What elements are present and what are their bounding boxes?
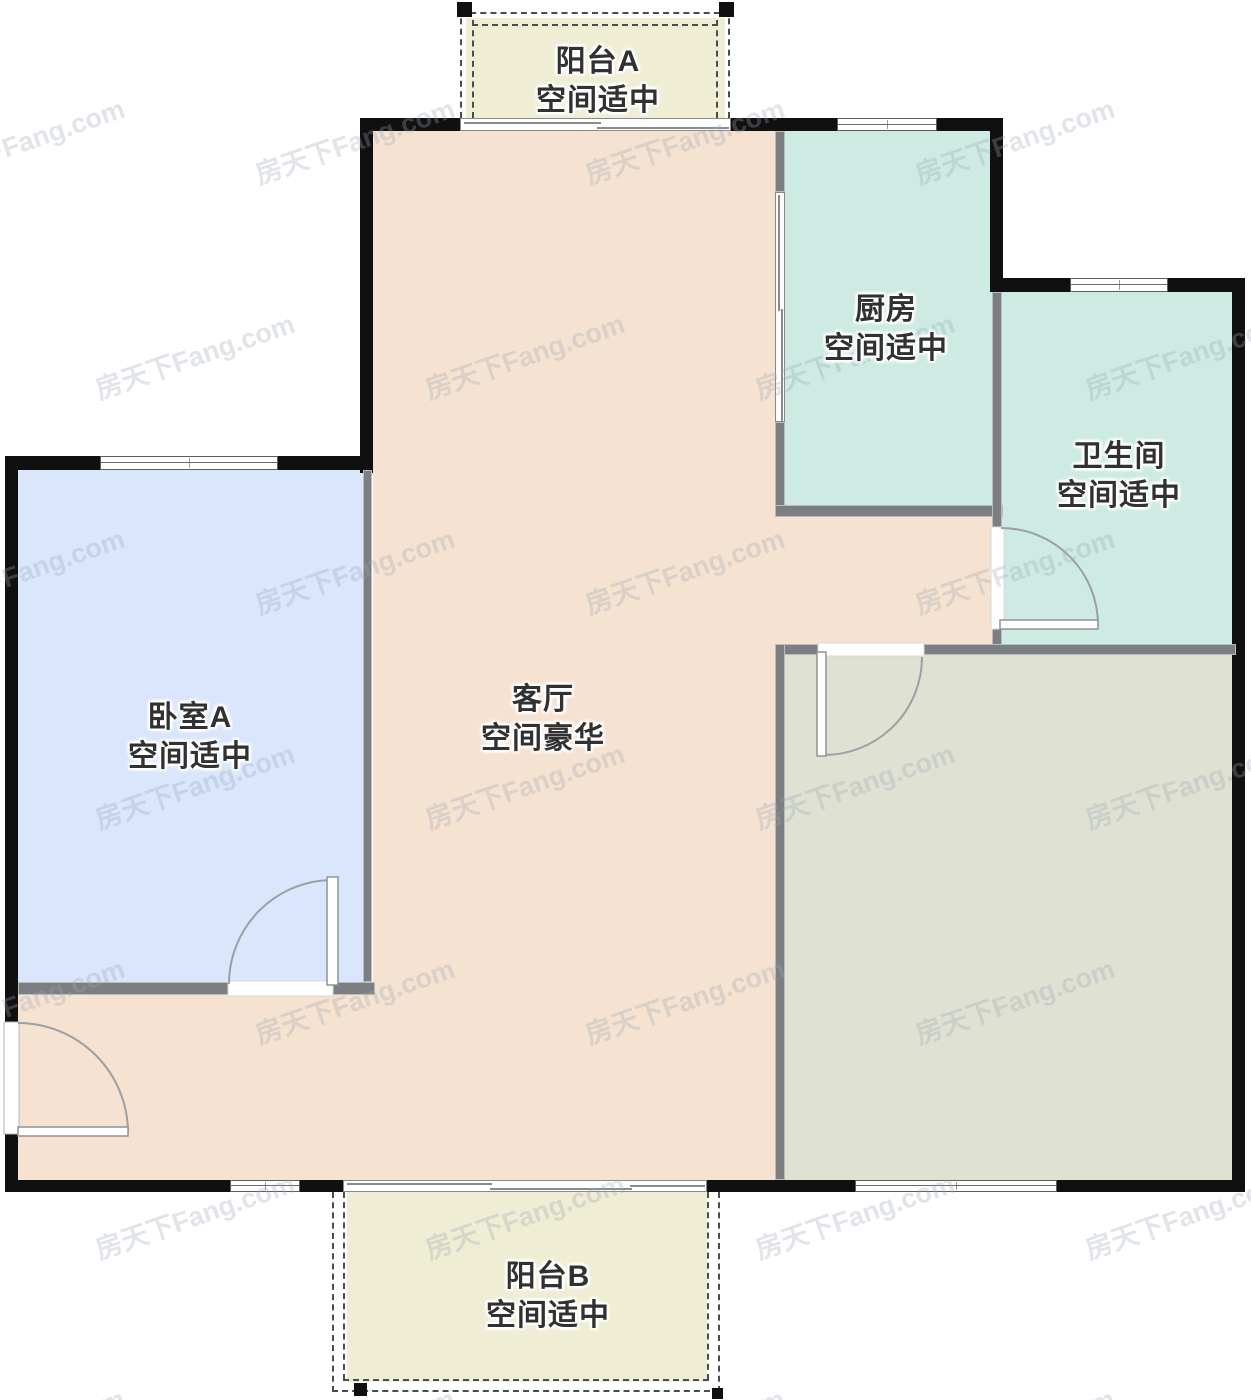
balcony-a-outline: [472, 20, 474, 118]
living-room-label: 客厅 空间豪华: [481, 680, 605, 758]
room-note: 空间适中: [824, 329, 948, 368]
bathroom-door: [991, 527, 1098, 629]
balcony-b-corner-post: [712, 1388, 723, 1399]
balcony-a-outline: [460, 12, 730, 14]
room-name: 阳台A: [536, 42, 660, 81]
balcony-b-outline: [718, 1192, 720, 1392]
balcony-b-outline: [332, 1192, 334, 1392]
balcony-b-outline: [707, 1192, 709, 1380]
balcony-a-outline: [472, 24, 718, 26]
balcony-b-outline: [332, 1390, 720, 1392]
secondary-room-door: [817, 643, 924, 756]
room-name: 厨房: [824, 290, 948, 329]
kitchen-label: 厨房 空间适中: [824, 290, 948, 368]
room-note: 空间适中: [486, 1296, 610, 1335]
bedroom-a-label: 卧室A 空间适中: [128, 698, 252, 776]
floor-plan: 房天下Fang.com房天下Fang.com房天下Fang.com房天下Fang…: [0, 0, 1251, 1400]
room-name: 卧室A: [128, 698, 252, 737]
bathroom-label: 卫生间 空间适中: [1057, 437, 1181, 515]
room-note: 空间适中: [1057, 476, 1181, 515]
room-name: 阳台B: [486, 1257, 610, 1296]
balcony-a-label: 阳台A 空间适中: [536, 42, 660, 120]
balcony-a-outline: [460, 8, 462, 118]
balcony-b-label: 阳台B 空间适中: [486, 1257, 610, 1335]
room-name: 卫生间: [1057, 437, 1181, 476]
room-note: 空间适中: [128, 737, 252, 776]
balcony-a-corner-post: [719, 2, 734, 17]
balcony-b-corner-post: [354, 1383, 367, 1396]
balcony-b-outline: [343, 1192, 345, 1380]
bedroom-a-door: [228, 877, 338, 996]
room-note: 空间适中: [536, 81, 660, 120]
room-name: 客厅: [481, 680, 605, 719]
balcony-a-outline: [728, 8, 730, 118]
balcony-a-outline: [716, 20, 718, 118]
entry-door: [4, 1022, 128, 1136]
room-note: 空间豪华: [481, 719, 605, 758]
balcony-a-corner-post: [457, 2, 472, 17]
balcony-b-outline: [343, 1379, 709, 1381]
